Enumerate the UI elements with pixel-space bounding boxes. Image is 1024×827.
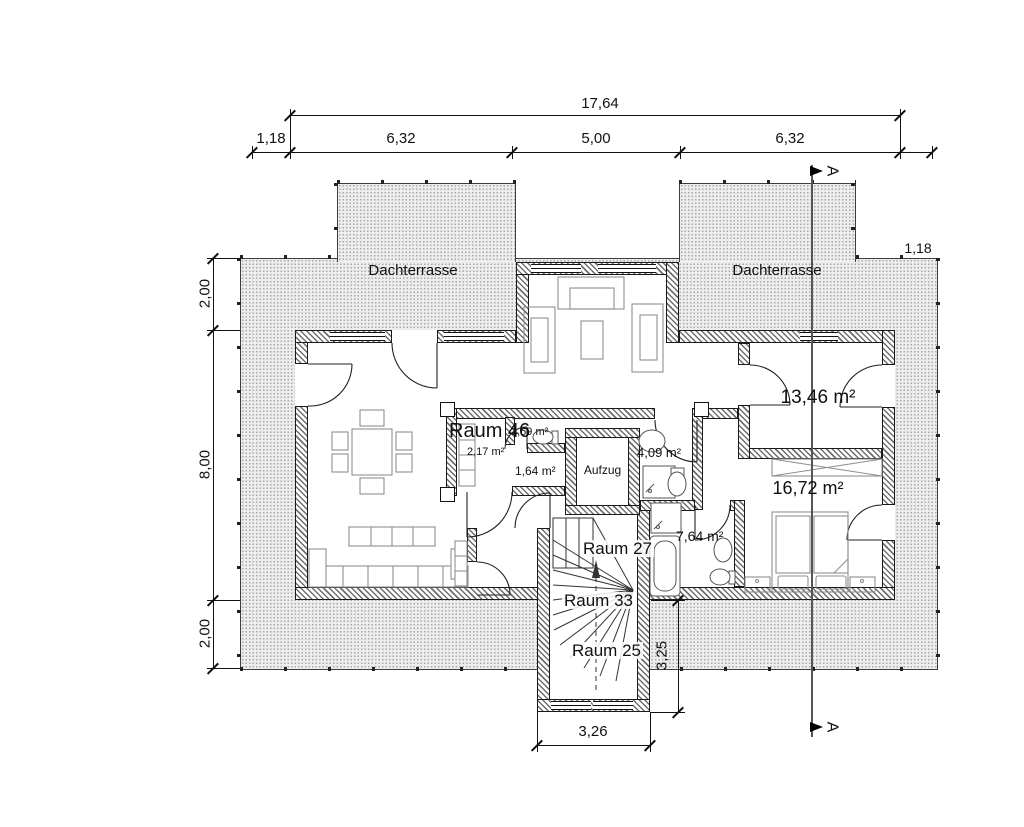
sofa-set [524, 277, 663, 373]
room-label-area-409: 4,09 m² [637, 446, 681, 459]
room-label-area-764: 7,64 m² [676, 529, 723, 543]
dim-top-seg: 6,32 [366, 131, 436, 146]
room-label-area-1346: 13,46 m² [766, 388, 870, 407]
room-label-area-217: 2,17 m² [467, 447, 504, 458]
double-bed [745, 512, 875, 592]
dim-left-seg: 8,00 [198, 435, 213, 495]
dim-top-seg: 1,18 [248, 131, 294, 146]
room-label-raum33: Raum 33 [562, 592, 635, 609]
dimension-line [678, 600, 679, 712]
dim-right-strip: 1,18 [896, 241, 940, 255]
plan-lineart [0, 0, 1024, 827]
dim-top-seg: 5,00 [561, 131, 631, 146]
dim-top-seg: 6,32 [755, 131, 825, 146]
section-line [811, 165, 813, 737]
room-label-elevator: Aufzug [576, 464, 629, 476]
dim-stair-width: 3,26 [558, 724, 628, 739]
dim-left-seg: 2,00 [198, 264, 213, 324]
section-marker-bottom: A [823, 722, 839, 733]
dining-set [332, 410, 412, 494]
room-label-terrace-right: Dachterrasse [716, 263, 838, 278]
room-label-raum25: Raum 25 [570, 642, 643, 659]
dimension-line [290, 115, 900, 116]
wardrobe [772, 459, 882, 476]
room-label-raum27: Raum 27 [581, 540, 654, 557]
section-marker-top: A [823, 166, 839, 177]
extension-line [900, 121, 901, 147]
cabinet-row [309, 527, 468, 587]
dimension-line [252, 152, 932, 153]
bath-fixtures [533, 430, 735, 596]
dimension-line [537, 745, 650, 746]
dim-stair-depth: 3,25 [655, 626, 670, 686]
room-label-area-1672: 16,72 m² [756, 479, 860, 497]
room-label-area-164: 1,64 m² [515, 465, 556, 477]
dim-left-seg: 2,00 [198, 604, 213, 664]
section-arrow-icon [810, 722, 823, 732]
room-label-terrace-left: Dachterrasse [353, 263, 473, 278]
dim-total-width: 17,64 [555, 96, 645, 111]
floor-plan-canvas: A A 17,64 1,18 6,32 5, [0, 0, 1024, 827]
section-arrow-icon [810, 166, 823, 176]
room-label-area-159: 1,59 m² [511, 427, 548, 438]
